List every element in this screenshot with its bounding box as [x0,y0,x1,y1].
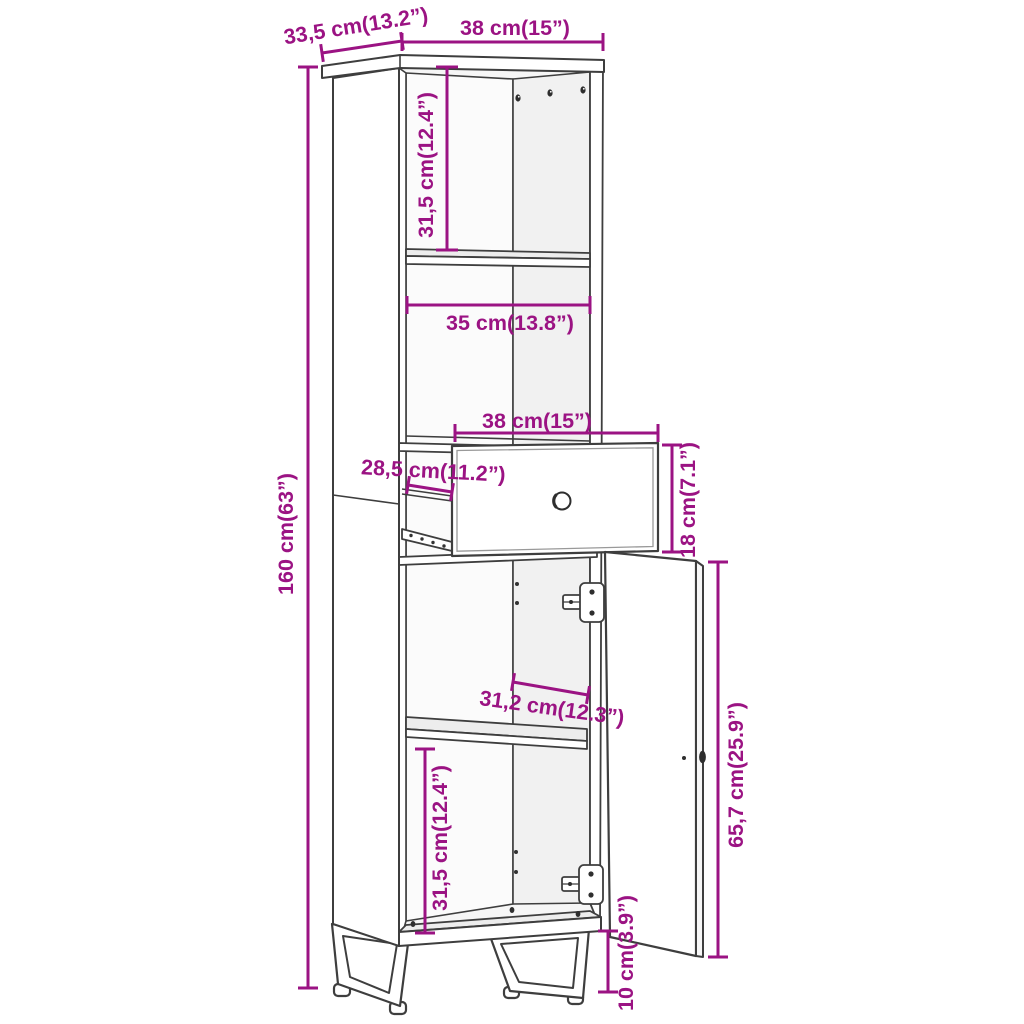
dimension-label-leg-height: 10 cm(3.9”) [614,895,638,1011]
screw [515,94,520,101]
screw-highlight [583,88,585,90]
pin-hole [515,601,519,605]
dimension-label-bottom-compartment: 31,5 cm(12.4”) [428,765,452,911]
hinge-screw [589,589,594,594]
dimension-label-door-height: 65,7 cm(25.9”) [724,702,748,848]
door-knob [699,751,706,763]
hinge-plate [579,865,603,904]
hinge-screw [589,610,594,615]
dimension-label-drawer-height: 18 cm(7.1”) [676,442,700,558]
dim-line-height-overall [298,67,318,988]
rail-hole [442,544,445,547]
floor-screw [576,911,581,917]
floor-screw [411,921,416,927]
shelf-front-edge [406,256,590,267]
hinge-screw [588,871,593,876]
dimension-label-top-compartment: 31,5 cm(12.4”) [414,92,438,238]
hinge-bolt [568,882,572,886]
drawer [452,443,658,556]
floor-screw [510,907,515,913]
cabinet-dimension-diagram: 33,5 cm(13.2”) 38 cm(15”) 160 cm(63”) 31… [0,0,1024,1024]
dimension-label-width-top: 38 cm(15”) [460,16,570,40]
dimension-label-drawer-width: 38 cm(15”) [482,409,592,433]
rail-hole [431,541,434,544]
hinge-plate [580,583,604,622]
diagram-page: 33,5 cm(13.2”) 38 cm(15”) 160 cm(63”) 31… [0,0,1024,1024]
screw [547,89,552,96]
pin-hole [514,870,518,874]
hinge-bolt [569,600,573,604]
pin-hole [515,582,519,586]
left-front-stile [399,68,406,946]
door-knob-screw [682,756,686,760]
pin-hole [514,850,518,854]
dimension-label-shelf-width: 35 cm(13.8”) [446,311,574,335]
screw-highlight [518,96,520,98]
screw-highlight [550,91,552,93]
left-side-panel [333,68,399,946]
hinge-screw [588,892,593,897]
rail-hole [409,534,412,537]
dimension-label-height-overall: 160 cm(63”) [274,473,298,595]
screw [580,86,585,93]
rail-hole [420,537,423,540]
